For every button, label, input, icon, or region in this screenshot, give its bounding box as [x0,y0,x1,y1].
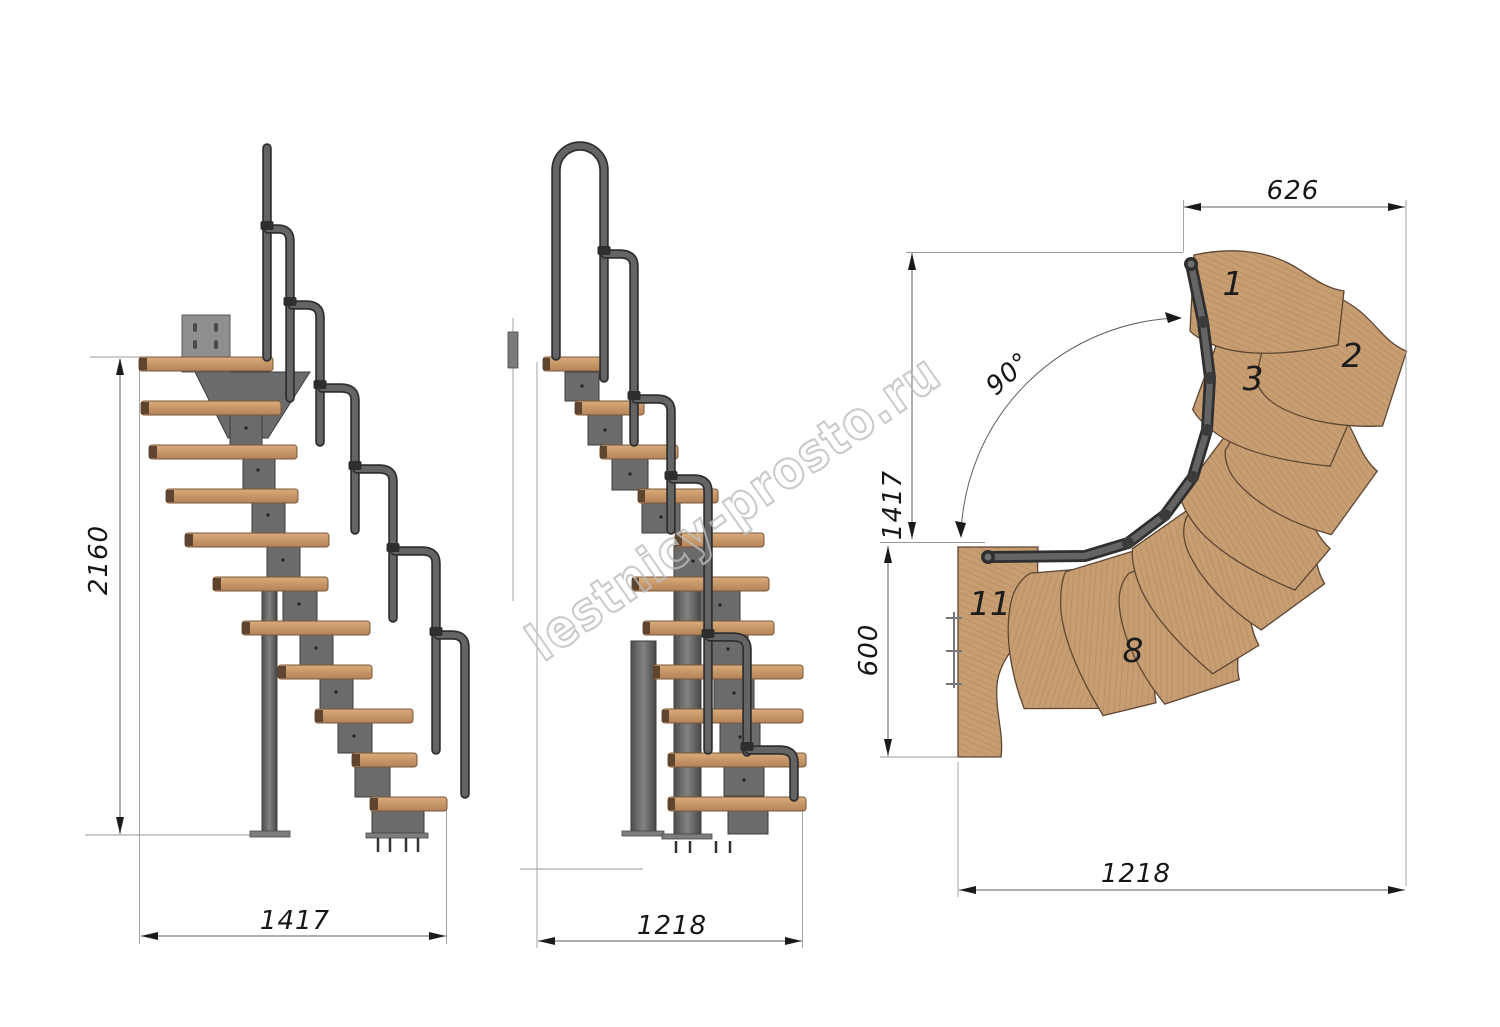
tread [1190,251,1344,354]
wall-mount [508,318,518,601]
side-elevation-treads [139,357,447,811]
tread [278,665,372,679]
dim-angle-90: 90° [980,346,1037,401]
side-elevation-view: 2160 1417 [84,148,465,944]
dim-width-1218: 1218 [637,911,707,941]
dim-plan-1218: 1218 [1101,859,1171,889]
plan-treads [958,251,1415,757]
tread-label-8: 8 [1123,631,1144,670]
tread [141,401,281,415]
tread [653,665,803,679]
tread [370,797,447,811]
tread [149,445,297,459]
dim-plan-1417: 1417 [878,470,908,540]
tread [242,621,370,635]
dim-width-1417: 1417 [260,906,330,936]
technical-drawing-page: 2160 1417 [0,0,1500,1027]
tread [668,797,806,811]
tread [139,357,273,371]
tread-label-11: 11 [969,584,1011,623]
dim-height-2160: 2160 [84,525,114,595]
tread [315,709,413,723]
tread [166,489,298,503]
tread [213,577,328,591]
tread-label-1: 1 [1223,264,1244,303]
tread-label-2: 2 [1342,336,1363,375]
tread [352,753,417,767]
tread [662,709,803,723]
plan-view: 626 1417 600 1218 90° [854,176,1415,897]
tread [543,357,601,371]
tread [185,533,329,547]
dim-plan-626: 626 [1267,176,1320,206]
tread-label-3: 3 [1243,359,1264,398]
side-elevation-handrail [261,148,466,794]
dim-plan-600: 600 [854,624,884,677]
staircase-drawing: 2160 1417 [0,0,1500,1027]
